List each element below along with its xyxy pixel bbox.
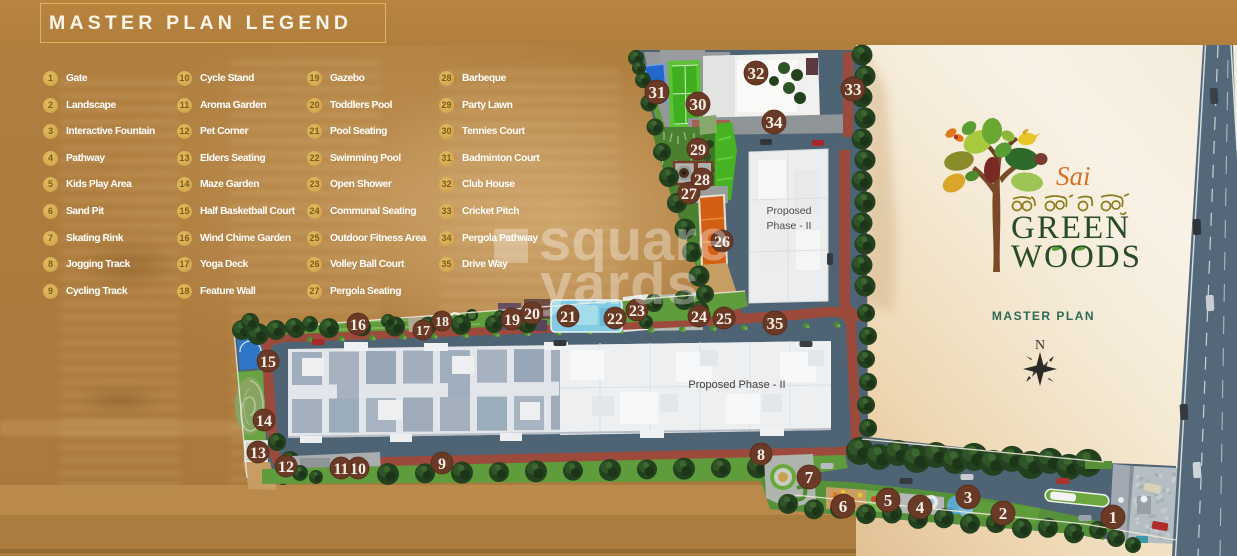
svg-text:30: 30 — [690, 95, 707, 114]
svg-text:3: 3 — [964, 488, 973, 507]
svg-text:31: 31 — [649, 83, 666, 102]
svg-text:10: 10 — [350, 461, 366, 478]
svg-text:18: 18 — [435, 315, 449, 330]
svg-text:34: 34 — [766, 113, 784, 132]
svg-text:7: 7 — [805, 468, 814, 487]
svg-text:33: 33 — [845, 80, 862, 99]
svg-text:4: 4 — [916, 498, 925, 517]
svg-text:8: 8 — [757, 447, 765, 464]
svg-text:11: 11 — [333, 461, 348, 478]
svg-text:28: 28 — [694, 172, 710, 189]
svg-text:Proposed: Proposed — [767, 205, 812, 217]
svg-text:15: 15 — [260, 354, 276, 371]
svg-text:25: 25 — [716, 311, 732, 328]
svg-text:1: 1 — [1109, 508, 1118, 527]
svg-text:16: 16 — [350, 317, 366, 334]
svg-text:17: 17 — [416, 324, 430, 339]
svg-text:29: 29 — [690, 142, 706, 159]
svg-text:20: 20 — [524, 306, 540, 323]
svg-text:Proposed Phase - II: Proposed Phase - II — [688, 379, 785, 391]
svg-text:14: 14 — [256, 413, 272, 430]
svg-text:Phase - II: Phase - II — [767, 220, 812, 232]
svg-text:5: 5 — [884, 491, 893, 510]
svg-text:N: N — [1035, 338, 1045, 353]
svg-text:6: 6 — [839, 497, 848, 516]
svg-text:32: 32 — [748, 64, 765, 83]
svg-text:35: 35 — [767, 314, 784, 333]
svg-text:12: 12 — [278, 459, 294, 476]
svg-text:9: 9 — [438, 456, 446, 473]
svg-text:2: 2 — [999, 504, 1008, 523]
svg-text:13: 13 — [250, 445, 266, 462]
svg-text:19: 19 — [504, 312, 520, 329]
